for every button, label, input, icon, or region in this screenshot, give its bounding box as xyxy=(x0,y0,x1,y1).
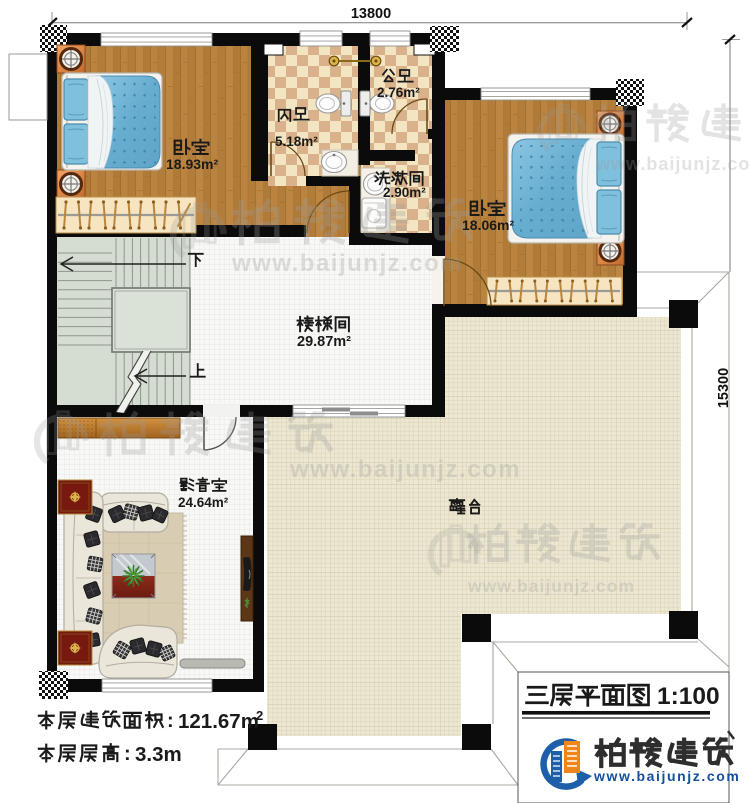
svg-text:29.87m²: 29.87m² xyxy=(297,334,351,350)
svg-text:121.67m: 121.67m xyxy=(178,710,259,733)
svg-text:2.90m²: 2.90m² xyxy=(383,185,426,200)
svg-text:www.baijunjz.com: www.baijunjz.com xyxy=(231,250,463,277)
svg-text:1:100: 1:100 xyxy=(657,683,720,710)
svg-text:18.93m²: 18.93m² xyxy=(166,156,218,172)
svg-text:2: 2 xyxy=(256,708,263,723)
svg-text:5.18m²: 5.18m² xyxy=(275,134,318,149)
svg-text:2.76m²: 2.76m² xyxy=(377,85,420,100)
svg-text:www.baijunjz.com: www.baijunjz.com xyxy=(467,576,635,596)
svg-text::: : xyxy=(124,743,131,765)
svg-text:www.baijunjz.com: www.baijunjz.com xyxy=(289,456,521,483)
svg-text:24.64m²: 24.64m² xyxy=(178,495,229,510)
svg-text:www.baijunjz.com: www.baijunjz.com xyxy=(595,154,750,174)
svg-text:15300: 15300 xyxy=(716,368,732,408)
svg-text::: : xyxy=(167,710,174,732)
svg-text:3.3m: 3.3m xyxy=(135,743,182,766)
svg-text:13800: 13800 xyxy=(351,6,391,22)
svg-text:www.baijunjz.com: www.baijunjz.com xyxy=(593,768,740,784)
svg-text:18.06m²: 18.06m² xyxy=(462,217,514,233)
